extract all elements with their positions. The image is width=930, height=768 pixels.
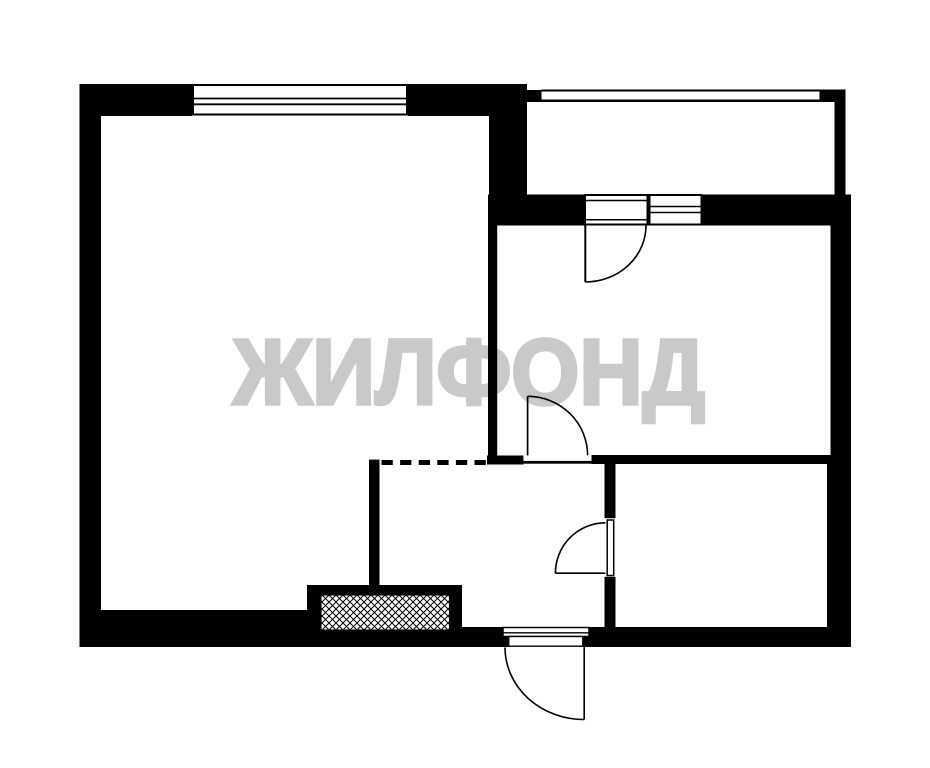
svg-text:ЖИЛФОНД: ЖИЛФОНД [232, 320, 705, 424]
